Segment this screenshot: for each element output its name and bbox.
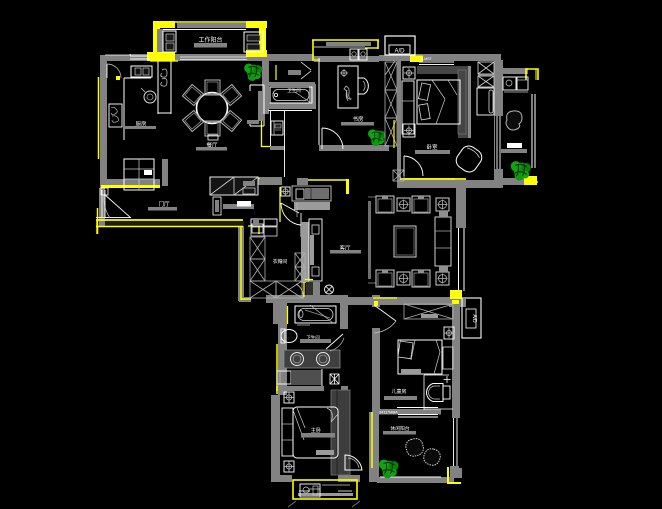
svg-text:A/D: A/D — [394, 49, 405, 55]
svg-text:主卧: 主卧 — [311, 426, 321, 434]
svg-text:卫生间: 卫生间 — [287, 87, 301, 94]
svg-text:衣帽间: 衣帽间 — [273, 258, 288, 265]
svg-text:书房: 书房 — [352, 115, 364, 123]
svg-text:休闲阳台: 休闲阳台 — [390, 425, 409, 432]
svg-text:儿童房: 儿童房 — [391, 388, 406, 395]
svg-text:卧室: 卧室 — [426, 143, 438, 151]
svg-text:门厅: 门厅 — [158, 200, 170, 208]
svg-text:A/D: A/D — [471, 314, 477, 323]
svg-text:工作阳台: 工作阳台 — [198, 36, 222, 44]
svg-text:SLMST: SLMST — [420, 57, 433, 61]
svg-text:3411*MBA: 3411*MBA — [379, 410, 398, 415]
